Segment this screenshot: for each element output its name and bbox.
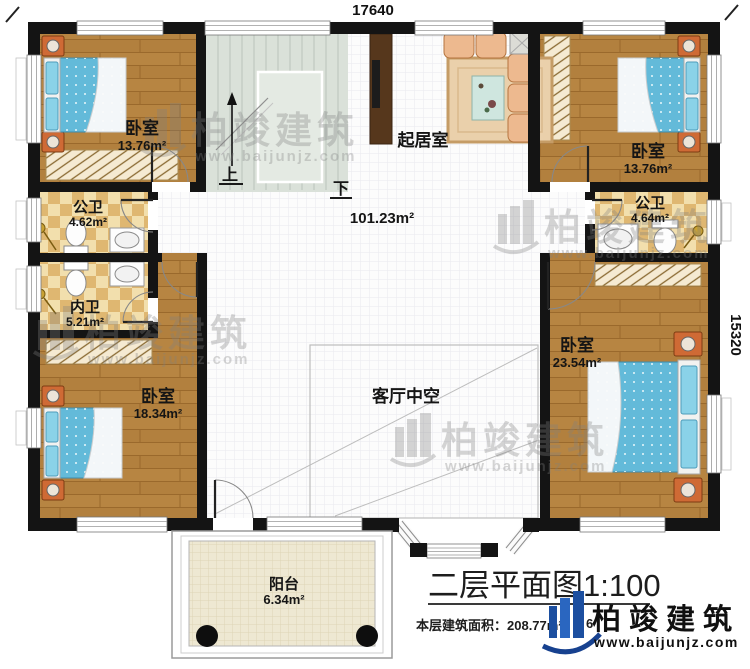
window [580, 517, 665, 532]
watermark-brand-text: 柏竣建筑 [84, 312, 252, 354]
room-label-bath-public-left: 公卫 [73, 199, 103, 216]
pillow [46, 412, 58, 442]
column [196, 625, 218, 647]
pillow [686, 98, 698, 130]
room-area-bath-private-left: 5.21m² [66, 315, 104, 329]
pillow [46, 446, 58, 476]
window [415, 21, 493, 35]
watermark-brand-text: 柏竣建筑 [544, 206, 712, 248]
wardrobe-bedroom-br [595, 264, 701, 286]
sheet-title: 二层平面图1:100 [428, 568, 661, 603]
stair-down-label: 下 [333, 181, 349, 198]
bay-window [383, 518, 539, 558]
window [583, 21, 665, 35]
window [16, 55, 41, 143]
hall-area-label: 101.23m² [350, 210, 414, 227]
room-label-bath-private-left: 内卫 [70, 298, 100, 316]
void-label: 客厅中空 [371, 386, 440, 406]
sink-icon [115, 266, 139, 282]
pillow [686, 62, 698, 94]
room-area-bedroom-br: 23.54m² [553, 355, 602, 370]
brand-name: 柏竣建筑 [592, 602, 740, 636]
watermark-url-text: www.baijunjz.com [194, 148, 356, 165]
dimension-right: 15320 [727, 314, 744, 356]
room-area-bedroom-tr: 13.76m² [624, 161, 673, 176]
window [16, 198, 41, 242]
toilet-icon [66, 270, 86, 296]
tv-icon [372, 60, 380, 108]
window [707, 395, 731, 473]
sink-icon [115, 232, 139, 248]
pillow [681, 366, 697, 414]
coffee-table [472, 76, 504, 120]
window [16, 266, 41, 312]
window [16, 408, 41, 448]
dimension-top: 17640 [352, 2, 394, 19]
window [707, 55, 721, 143]
room-area-bath-public-left: 4.62m² [69, 215, 107, 229]
room-area-bedroom-bl: 18.34m² [134, 406, 183, 421]
room-label-bedroom-tl: 卧室 [125, 118, 159, 138]
floor-plan-sheet: 柏竣建筑 www.baijunjz.com 柏竣建筑 www.baijunjz.… [0, 0, 750, 669]
room-label-bedroom-tr: 卧室 [631, 141, 665, 161]
pillow [46, 62, 58, 94]
sofa-cushion [476, 32, 506, 58]
room-label-living: 起居室 [397, 130, 449, 150]
window [77, 21, 163, 35]
pillow [681, 420, 697, 468]
stair-up-label: 上 [222, 166, 238, 184]
hall-center-floor [207, 253, 540, 518]
pillow [46, 98, 58, 130]
floor-plan-drawing: 柏竣建筑 www.baijunjz.com 柏竣建筑 www.baijunjz.… [0, 0, 750, 669]
watermark-brand-text: 柏竣建筑 [441, 419, 609, 461]
room-label-bedroom-br: 卧室 [560, 335, 594, 355]
watermark-url-text: www.baijunjz.com [87, 351, 249, 368]
bay-front-window [427, 544, 481, 558]
sofa-cushion [444, 32, 474, 58]
window [205, 21, 330, 35]
room-label-bath-public-right: 公卫 [635, 195, 665, 212]
toilet-tank [64, 262, 88, 270]
room-area-bath-public-right: 4.64m² [631, 211, 669, 225]
column [356, 625, 378, 647]
window [267, 517, 362, 532]
window [77, 517, 167, 532]
room-area-balcony: 6.34m² [263, 592, 305, 607]
floor-area-note: 本层建筑面积：208.77m² [416, 618, 563, 633]
watermark-url-text: www.baijunjz.com [547, 245, 709, 262]
toilet-tank [64, 246, 88, 254]
watermark-brand-text: 柏竣建筑 [191, 109, 359, 151]
room-label-bedroom-bl: 卧室 [141, 386, 175, 406]
brand-url: www.baijunjz.com [593, 634, 739, 650]
watermark-url-text: www.baijunjz.com [444, 458, 606, 475]
room-area-bedroom-tl: 13.76m² [118, 138, 167, 153]
room-label-balcony: 阳台 [269, 575, 299, 593]
